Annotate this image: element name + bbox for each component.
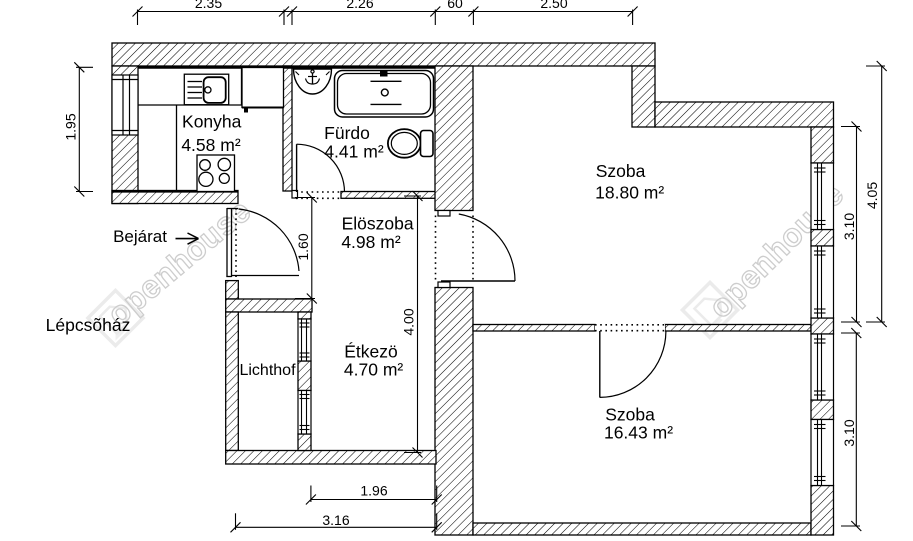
svg-text:1.96: 1.96 xyxy=(360,483,387,499)
svg-text:2.26: 2.26 xyxy=(346,0,373,11)
svg-text:Szoba: Szoba xyxy=(605,405,655,425)
svg-text:1.60: 1.60 xyxy=(295,233,311,260)
svg-text:1.95: 1.95 xyxy=(62,113,78,140)
svg-text:4.05: 4.05 xyxy=(864,182,880,209)
svg-text:Lichthof: Lichthof xyxy=(239,362,296,379)
svg-text:4.58 m²: 4.58 m² xyxy=(181,135,240,155)
svg-text:Szoba: Szoba xyxy=(596,161,646,181)
svg-text:Lépcsõház: Lépcsõház xyxy=(46,315,131,335)
svg-text:4.98 m²: 4.98 m² xyxy=(341,232,400,252)
svg-text:4.00: 4.00 xyxy=(401,308,417,335)
svg-text:Bejárat: Bejárat xyxy=(113,227,167,246)
svg-text:4.41 m²: 4.41 m² xyxy=(324,142,383,162)
svg-text:3.10: 3.10 xyxy=(841,419,857,446)
svg-text:2.50: 2.50 xyxy=(540,0,567,11)
svg-text:60: 60 xyxy=(447,0,463,11)
svg-text:Étkezö: Étkezö xyxy=(344,341,398,361)
svg-text:Elöszoba: Elöszoba xyxy=(342,214,414,234)
svg-text:Fürdo: Fürdo xyxy=(324,123,370,143)
svg-text:3.16: 3.16 xyxy=(322,512,349,528)
svg-text:18.80 m²: 18.80 m² xyxy=(595,182,664,202)
svg-text:16.43 m²: 16.43 m² xyxy=(604,423,673,443)
svg-text:2.35: 2.35 xyxy=(195,0,222,11)
svg-text:4.70 m²: 4.70 m² xyxy=(344,360,403,380)
svg-text:3.10: 3.10 xyxy=(841,213,857,240)
svg-text:Konyha: Konyha xyxy=(182,112,242,132)
